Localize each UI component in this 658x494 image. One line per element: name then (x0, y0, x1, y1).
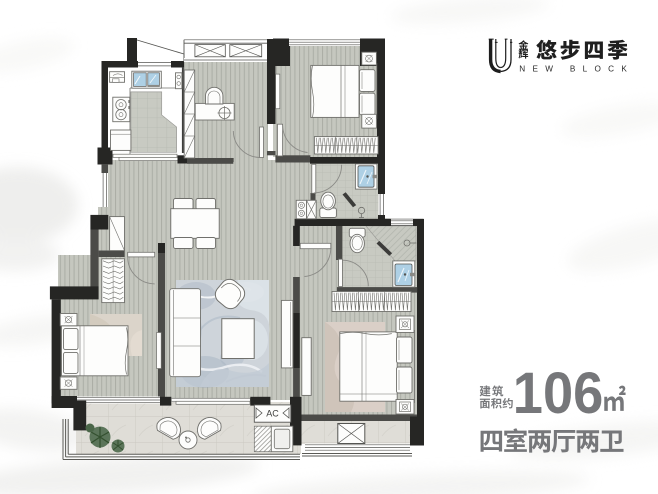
svg-text:106: 106 (513, 361, 604, 426)
svg-text:NEW BLOCK: NEW BLOCK (519, 64, 634, 73)
svg-text:AC: AC (266, 409, 279, 419)
